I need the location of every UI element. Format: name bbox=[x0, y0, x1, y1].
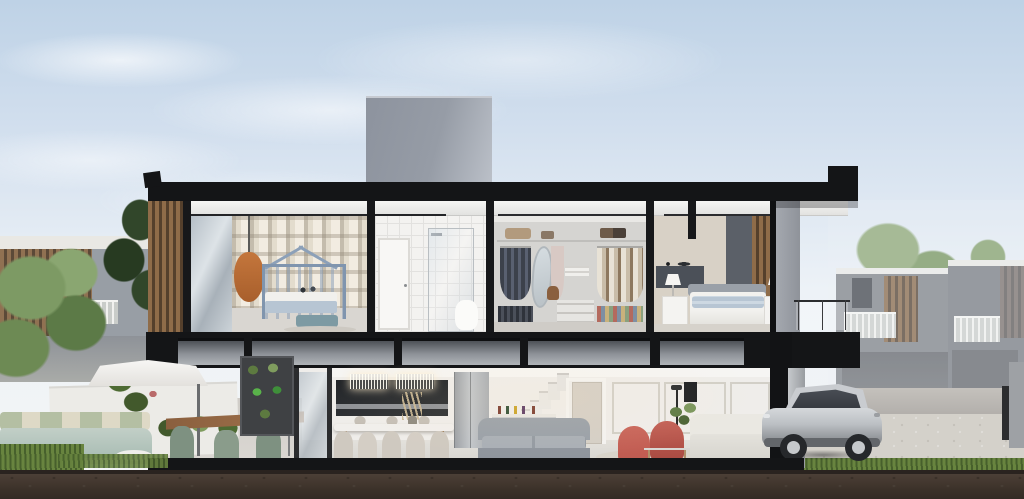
kitchen-counter bbox=[336, 404, 448, 409]
roof-right-parapet bbox=[828, 166, 858, 186]
shelf-plants bbox=[243, 360, 291, 432]
closet-bag-2 bbox=[541, 231, 554, 239]
outdoor-chair-1 bbox=[170, 426, 194, 462]
column-3 bbox=[486, 201, 494, 336]
car-taillight bbox=[874, 413, 880, 417]
soil-top-edge bbox=[0, 470, 1024, 474]
column-4 bbox=[646, 201, 654, 336]
house-bed-blanket bbox=[265, 301, 337, 313]
bar-bottles bbox=[498, 406, 550, 414]
master-duvet bbox=[692, 296, 764, 308]
closet-floor bbox=[493, 322, 650, 332]
bed-toys bbox=[298, 286, 320, 293]
roof-slab bbox=[148, 182, 858, 201]
roof-left-lip bbox=[143, 171, 162, 188]
closet-bag-3 bbox=[600, 228, 626, 238]
fence-post bbox=[1002, 386, 1009, 440]
balcony-post-1 bbox=[798, 300, 799, 330]
floor-lamp-head bbox=[671, 385, 682, 390]
tv-panel bbox=[684, 382, 697, 402]
balcony-post-3 bbox=[845, 300, 846, 330]
dining-chair-1 bbox=[334, 431, 353, 461]
car-headlight bbox=[763, 414, 770, 418]
column-1 bbox=[183, 201, 191, 336]
lamp-left-stem bbox=[672, 285, 674, 296]
boundary-wall-right bbox=[1009, 362, 1024, 448]
master-floor bbox=[654, 324, 774, 332]
transom-panel-3 bbox=[402, 338, 520, 365]
rooftop-volume bbox=[366, 96, 492, 190]
hanging-chair bbox=[234, 252, 264, 302]
closet-bag-1 bbox=[505, 228, 531, 239]
architectural-render bbox=[0, 0, 1024, 499]
chandelier-1 bbox=[350, 374, 388, 389]
car-wheel-front-rim bbox=[787, 441, 800, 454]
soil-cross-section bbox=[0, 472, 1024, 499]
car-wheel-rear-rim bbox=[852, 441, 865, 454]
grass-patio-edge bbox=[58, 454, 168, 468]
beam-stub bbox=[688, 201, 696, 239]
balcony-post-2 bbox=[822, 300, 823, 330]
toilet bbox=[455, 300, 478, 330]
chandelier-2 bbox=[396, 374, 434, 389]
cut-edge-right-upper bbox=[770, 201, 776, 336]
transom-panel-5 bbox=[660, 338, 744, 365]
dining-table bbox=[334, 424, 454, 431]
closet-top-shelf bbox=[497, 240, 646, 242]
glass-door-pane bbox=[299, 372, 327, 462]
fridge-split bbox=[470, 372, 471, 448]
leather-bag-floor bbox=[547, 286, 559, 300]
upper-window-left bbox=[188, 216, 235, 332]
facade-slat-screen bbox=[148, 201, 188, 332]
roof-overhang-shadow bbox=[774, 201, 858, 208]
transom-panel-1 bbox=[178, 338, 244, 365]
glass-door-right-post bbox=[327, 368, 332, 464]
folded-towels bbox=[565, 266, 589, 276]
hanging-chair-cord bbox=[248, 216, 250, 254]
armchair-red-1 bbox=[618, 426, 650, 462]
column-2 bbox=[367, 201, 375, 336]
clothes-rail-coats bbox=[597, 246, 643, 302]
clothes-rail-dark-suits bbox=[500, 246, 531, 300]
console-items bbox=[664, 261, 694, 266]
door-knob bbox=[404, 284, 407, 287]
transom-panel-4 bbox=[528, 338, 650, 365]
